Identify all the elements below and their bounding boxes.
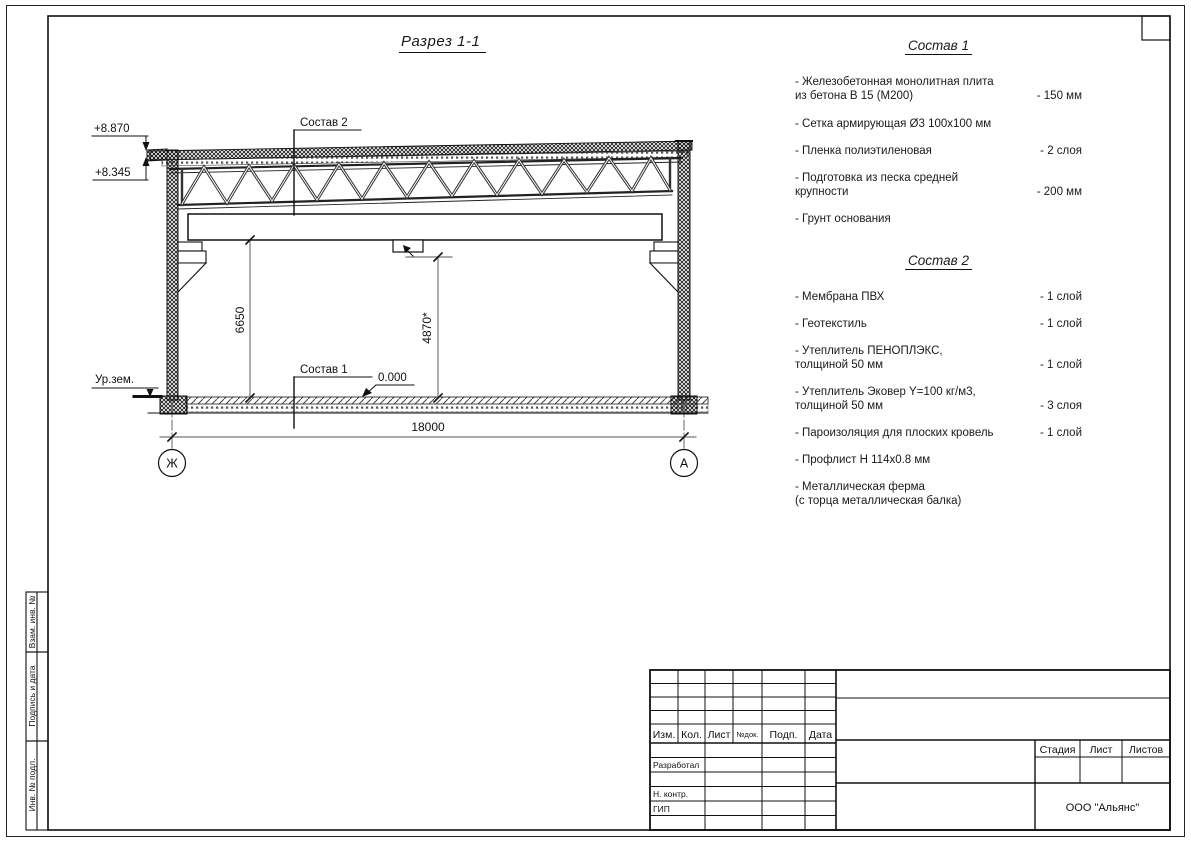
column-right xyxy=(678,141,690,400)
tb-col-ndok: №док. xyxy=(737,730,759,739)
sostav1-item: - Железобетонная монолитная плита из бет… xyxy=(795,75,1082,103)
composition-panel: Состав 1 - Железобетонная монолитная пли… xyxy=(795,38,1082,521)
zero-level-label: 0.000 xyxy=(378,372,407,384)
tb-col-data: Дата xyxy=(809,729,832,741)
ground-level-label: Ур.зем. xyxy=(95,374,134,386)
elevation-parapet: +8.870 xyxy=(92,123,150,151)
dimension-6650: 6650 xyxy=(233,236,254,402)
columns xyxy=(167,141,692,400)
tb-company: ООО "Альянс" xyxy=(1066,802,1140,814)
sostav2-item: - Утеплитель ПЕНОПЛЭКС, толщиной 50 мм -… xyxy=(795,344,1082,372)
sostav1-heading: Состав 1 xyxy=(795,38,1082,54)
tb-col-kol: Кол. xyxy=(681,729,702,741)
sostav2-heading: Состав 2 xyxy=(795,253,1082,269)
callout-floor-sostav1: Состав 1 xyxy=(294,364,372,428)
dimension-4870-label: 4870* xyxy=(420,312,434,344)
tb-stage-listov: Листов xyxy=(1129,744,1164,756)
tb-stage-list: Лист xyxy=(1090,744,1113,756)
dimension-6650-label: 6650 xyxy=(233,306,247,333)
crane-beam xyxy=(188,214,662,257)
callout-roof-label: Состав 2 xyxy=(300,117,348,129)
corbel-left xyxy=(178,242,206,292)
dimension-18000-label: 18000 xyxy=(411,420,445,434)
roof-truss xyxy=(170,158,682,209)
margin-stamp-labels: Взам. инв. № Подпись и дата Инв. № подл. xyxy=(27,596,37,812)
sostav2-item: - Пароизоляция для плоских кровель - 1 с… xyxy=(795,426,1082,440)
sostav1-item: - Сетка армирующая Ø3 100х100 мм xyxy=(795,117,1082,131)
sostav2-item: - Мембрана ПВХ - 1 слой xyxy=(795,290,1082,304)
margin-label-inv: Инв. № подл. xyxy=(27,759,37,812)
tb-col-podp: Подп. xyxy=(770,729,798,741)
column-left xyxy=(167,150,178,400)
drawing-title: Разрез 1-1 xyxy=(399,33,486,53)
tb-col-list: Лист xyxy=(708,729,731,741)
tb-role-gip: ГИП xyxy=(653,804,670,814)
sostav2-item: - Профлист Н 114х0.8 мм xyxy=(795,453,1082,467)
elevation-roof-label: +8.345 xyxy=(95,167,131,179)
tb-role-ncontrol: Н. контр. xyxy=(653,789,688,799)
sostav1-item: - Пленка полиэтиленовая - 2 слоя xyxy=(795,144,1082,158)
floor-slab xyxy=(134,396,708,414)
sostav1-item: - Подготовка из песка средней крупности … xyxy=(795,171,1082,199)
elevation-roof-edge: +8.345 xyxy=(93,157,150,180)
axis-bubble-right: А xyxy=(671,450,698,477)
axis-right-label: А xyxy=(680,457,689,471)
axis-bubble-left: Ж xyxy=(159,450,186,477)
foundation-left xyxy=(160,396,187,414)
elevation-parapet-label: +8.870 xyxy=(94,123,130,135)
margin-label-podpis: Подпись и дата xyxy=(27,665,37,726)
section-drawing: +8.870 +8.345 Ур.зем. 0.000 xyxy=(92,117,708,477)
zero-level-mark: 0.000 xyxy=(362,372,414,397)
dimension-4870: 4870* xyxy=(406,253,452,402)
margin-label-vzam: Взам. инв. № xyxy=(27,596,37,649)
tb-stage-stadia: Стадия xyxy=(1040,744,1076,756)
axis-left-label: Ж xyxy=(166,457,178,471)
corbel-right xyxy=(650,242,678,292)
callout-floor-label: Состав 1 xyxy=(300,364,348,376)
sostav2-item: - Металлическая ферма (с торца металличе… xyxy=(795,480,1082,508)
sostav2-item: - Геотекстиль - 1 слой xyxy=(795,317,1082,331)
sostav2-item: - Утеплитель Эковер Y=100 кг/м3, толщино… xyxy=(795,385,1082,413)
tb-col-izm: Изм. xyxy=(653,729,676,741)
drawing-sheet: +8.870 +8.345 Ур.зем. 0.000 xyxy=(0,0,1191,842)
sostav1-item: - Грунт основания xyxy=(795,212,1082,226)
ground-level-mark: Ур.зем. xyxy=(92,374,158,397)
tb-role-developer: Разработал xyxy=(653,760,699,770)
